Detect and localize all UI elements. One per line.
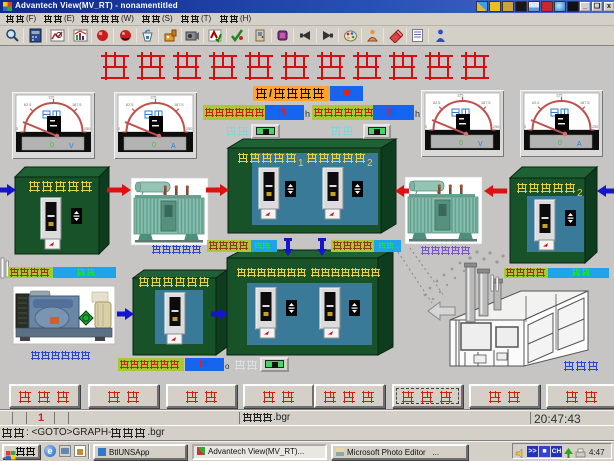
svg-text:V: V [69,143,74,150]
svg-text:V: V [478,141,483,148]
svg-text:A: A [171,143,176,150]
svg-text:A: A [577,141,582,148]
